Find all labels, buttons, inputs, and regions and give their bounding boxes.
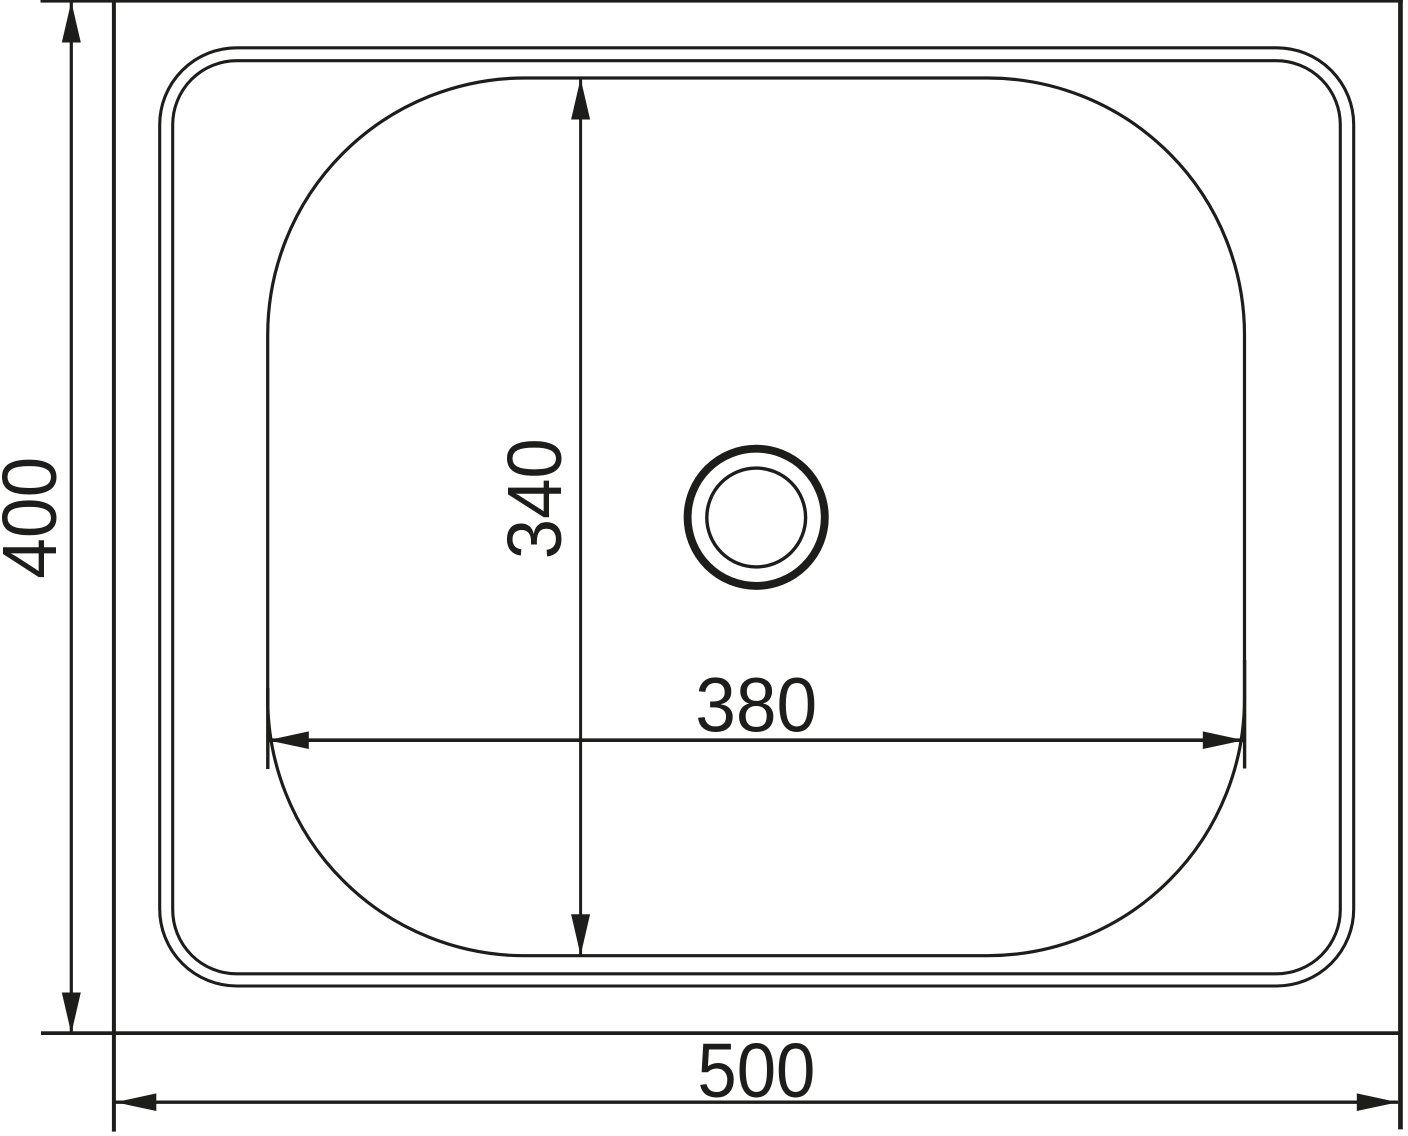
svg-text:400: 400 [0,457,73,579]
svg-text:340: 340 [492,438,578,559]
svg-text:380: 380 [695,663,817,749]
svg-text:500: 500 [697,1028,815,1114]
